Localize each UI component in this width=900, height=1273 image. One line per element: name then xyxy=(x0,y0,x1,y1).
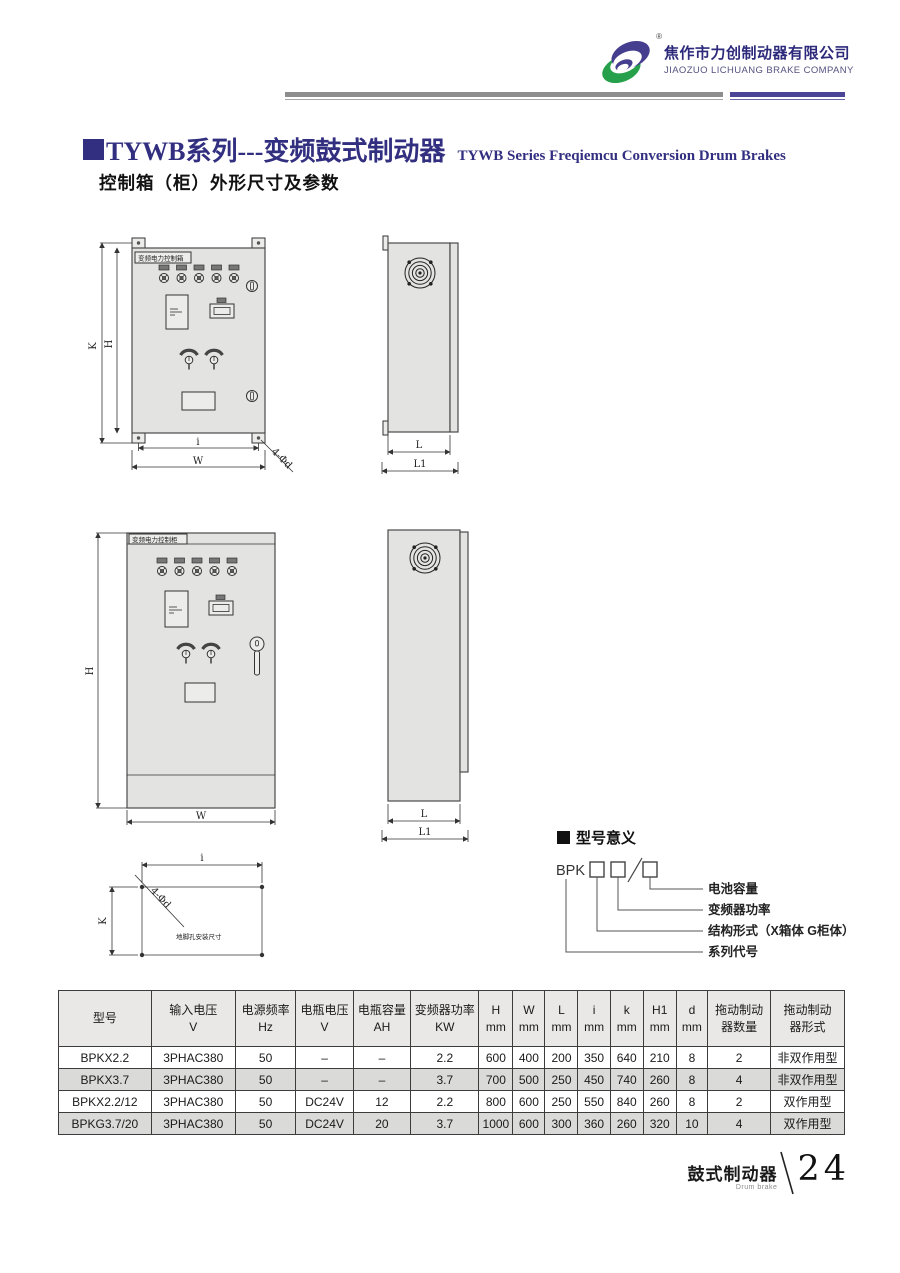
model-meaning-label: 变频器功率 xyxy=(708,902,771,917)
side-body xyxy=(388,530,460,801)
model-prefix: BPK xyxy=(556,863,585,879)
table-cell: 4 xyxy=(708,1113,771,1135)
company-name-en: JIAOZUO LICHUANG BRAKE COMPANY xyxy=(664,65,854,76)
table-cell: 250 xyxy=(545,1091,578,1113)
table-cell: 1000 xyxy=(479,1113,513,1135)
svg-text:i: i xyxy=(196,437,199,448)
svg-text:i: i xyxy=(200,853,203,864)
footer-label-en: Drum brake xyxy=(687,1184,777,1191)
leader-lines xyxy=(566,877,703,952)
table-cell: 260 xyxy=(643,1069,676,1091)
model-meaning-diagram: 型号意义 BPK 电池容量 变频器功率 结构形式（X箱体 G柜体） 系列代号 xyxy=(543,822,893,964)
cabinet-front-drawing: 变频电力控制柜 xyxy=(85,523,310,835)
table-cell: 双作用型 xyxy=(771,1091,845,1113)
table-cell: – xyxy=(296,1047,353,1069)
table-cell: 550 xyxy=(578,1091,610,1113)
table-cell: BPKX3.7 xyxy=(59,1069,152,1091)
column-header: 拖动制动器形式 xyxy=(771,991,845,1047)
table-cell: BPKX2.2 xyxy=(59,1047,152,1069)
column-header: 电源频率Hz xyxy=(235,991,296,1047)
table-cell: 3.7 xyxy=(411,1113,479,1135)
table-cell: 3PHAC380 xyxy=(151,1069,235,1091)
table-cell: 350 xyxy=(578,1047,610,1069)
box-side-drawing: L L1 xyxy=(367,224,472,486)
divider-bar-purple xyxy=(730,92,845,97)
divider-bar-gray xyxy=(285,92,723,97)
table-row: BPKG3.7/203PHAC38050DC24V203.71000600300… xyxy=(59,1113,845,1135)
footer-label-cn: 鼓式制动器 xyxy=(687,1160,777,1185)
column-header: imm xyxy=(578,991,610,1047)
table-cell: 3PHAC380 xyxy=(151,1047,235,1069)
table-row: BPKX2.23PHAC38050––2.2600400200350640210… xyxy=(59,1047,845,1069)
dimension-H: H xyxy=(104,248,117,433)
table-cell: DC24V xyxy=(296,1091,353,1113)
column-header: 变频器功率KW xyxy=(411,991,479,1047)
dimension-W: W xyxy=(132,450,265,470)
svg-text:L: L xyxy=(416,440,423,451)
foot-plan-caption: 地脚孔安装尺寸 xyxy=(176,932,222,941)
display-panel xyxy=(166,295,188,329)
table-cell: 50 xyxy=(235,1091,296,1113)
cabinet-side-drawing: L L1 xyxy=(370,523,472,848)
model-meaning-heading: 型号意义 xyxy=(576,829,636,847)
divider-line-gray xyxy=(285,99,723,100)
column-header: 拖动制动器数量 xyxy=(708,991,771,1047)
table-cell: 非双作用型 xyxy=(771,1069,845,1091)
footer-label: 鼓式制动器 Drum brake xyxy=(687,1160,777,1191)
table-cell: 200 xyxy=(545,1047,578,1069)
foot-plan-drawing: i K 4-Φd 地脚孔安装尺寸 xyxy=(88,843,303,965)
table-cell: 260 xyxy=(643,1091,676,1113)
spec-table: 型号输入电压V电源频率Hz电瓶电压V电瓶容量AH变频器功率KWHmmWmmLmm… xyxy=(58,990,845,1135)
table-cell: 4 xyxy=(708,1069,771,1091)
table-cell: 3PHAC380 xyxy=(151,1113,235,1135)
box-name-plate: 变频电力控制箱 xyxy=(138,254,184,263)
column-header: Lmm xyxy=(545,991,578,1047)
table-cell: 700 xyxy=(479,1069,513,1091)
brand-text: 焦作市力创制动器有限公司 JIAOZUO LICHUANG BRAKE COMP… xyxy=(664,34,854,76)
table-cell: 250 xyxy=(545,1069,578,1091)
svg-text:H: H xyxy=(104,339,115,348)
dimension-L: L xyxy=(388,804,460,824)
table-cell: 400 xyxy=(513,1047,545,1069)
column-header: 输入电压V xyxy=(151,991,235,1047)
table-cell: 800 xyxy=(479,1091,513,1113)
heading-square-icon xyxy=(557,831,570,844)
side-body xyxy=(388,243,450,432)
series-title-en: TYWB Series Freqiemcu Conversion Drum Br… xyxy=(457,148,785,165)
table-cell: 600 xyxy=(513,1091,545,1113)
table-cell: 50 xyxy=(235,1047,296,1069)
page-subtitle: 控制箱（柜）外形尺寸及参数 xyxy=(99,170,340,195)
svg-text:L1: L1 xyxy=(413,459,426,470)
logo-swirl-icon xyxy=(594,34,658,88)
svg-text:L1: L1 xyxy=(418,827,431,838)
column-header: kmm xyxy=(610,991,643,1047)
table-cell: 50 xyxy=(235,1069,296,1091)
holes-callout: 4-Φd xyxy=(261,440,294,472)
column-header: H1mm xyxy=(643,991,676,1047)
table-cell: DC24V xyxy=(296,1113,353,1135)
table-cell: 10 xyxy=(676,1113,707,1135)
dimension-i: i xyxy=(139,437,259,451)
dimension-L1: L1 xyxy=(382,827,468,842)
column-header: 电瓶容量AH xyxy=(353,991,410,1047)
svg-text:W: W xyxy=(196,811,207,822)
svg-text:4-Φd: 4-Φd xyxy=(148,886,173,912)
table-cell: 2.2 xyxy=(411,1047,479,1069)
column-header: Wmm xyxy=(513,991,545,1047)
column-header: Hmm xyxy=(479,991,513,1047)
table-row: BPKX2.2/123PHAC38050DC24V122.28006002505… xyxy=(59,1091,845,1113)
table-header-row: 型号输入电压V电源频率Hz电瓶电压V电瓶容量AH变频器功率KWHmmWmmLmm… xyxy=(59,991,845,1047)
cabinet-body xyxy=(127,533,275,808)
series-title-cn: TYWB系列---变频鼓式制动器 xyxy=(106,131,445,168)
model-meaning-label: 结构形式（X箱体 G柜体） xyxy=(708,923,855,938)
svg-text:L: L xyxy=(421,809,428,820)
page-number: 24 xyxy=(797,1152,850,1187)
dimension-H: H xyxy=(85,533,127,808)
table-cell: – xyxy=(296,1069,353,1091)
slash-divider xyxy=(628,858,642,882)
door-latch-icon xyxy=(247,391,258,402)
table-cell: – xyxy=(353,1069,410,1091)
divider-line-purple xyxy=(730,99,845,100)
column-header: 电瓶电压V xyxy=(296,991,353,1047)
page-footer: 鼓式制动器 Drum brake 24 xyxy=(660,1150,850,1196)
table-cell: 300 xyxy=(545,1113,578,1135)
table-row: BPKX3.73PHAC38050––3.7700500250450740260… xyxy=(59,1069,845,1091)
table-cell: 3.7 xyxy=(411,1069,479,1091)
column-header: dmm xyxy=(676,991,707,1047)
column-header: 型号 xyxy=(59,991,152,1047)
registered-mark: ® xyxy=(656,32,662,41)
bottom-vent xyxy=(182,392,215,410)
table-cell: 非双作用型 xyxy=(771,1047,845,1069)
display-panel xyxy=(165,591,188,627)
table-cell: BPKX2.2/12 xyxy=(59,1091,152,1113)
bottom-vent xyxy=(185,683,215,702)
svg-text:4-Φd: 4-Φd xyxy=(269,446,294,471)
table-cell: 2.2 xyxy=(411,1091,479,1113)
svg-text:K: K xyxy=(88,342,99,350)
svg-text:H: H xyxy=(85,666,96,675)
table-cell: 500 xyxy=(513,1069,545,1091)
table-cell: 210 xyxy=(643,1047,676,1069)
cabinet-name-plate: 变频电力控制柜 xyxy=(132,535,178,544)
section-title: TYWB系列---变频鼓式制动器 TYWB Series Freqiemcu C… xyxy=(83,131,786,168)
table-cell: 450 xyxy=(578,1069,610,1091)
company-name-cn: 焦作市力创制动器有限公司 xyxy=(664,42,854,63)
model-meaning-label: 电池容量 xyxy=(708,881,759,896)
table-cell: 20 xyxy=(353,1113,410,1135)
table-cell: 2 xyxy=(708,1047,771,1069)
company-brand: ® 焦作市力创制动器有限公司 JIAOZUO LICHUANG BRAKE CO… xyxy=(594,34,854,88)
table-cell: 260 xyxy=(610,1113,643,1135)
dimension-K: K xyxy=(98,887,138,955)
table-cell: – xyxy=(353,1047,410,1069)
door-latch-icon xyxy=(247,281,258,292)
table-cell: 360 xyxy=(578,1113,610,1135)
table-cell: 12 xyxy=(353,1091,410,1113)
table-cell: BPKG3.7/20 xyxy=(59,1113,152,1135)
table-cell: 2 xyxy=(708,1091,771,1113)
dimension-W: W xyxy=(127,810,275,825)
box-front-drawing: 变频电力控制箱 xyxy=(85,224,310,482)
table-cell: 740 xyxy=(610,1069,643,1091)
model-meaning-label: 系列代号 xyxy=(708,944,758,959)
table-cell: 600 xyxy=(479,1047,513,1069)
table-cell: 8 xyxy=(676,1091,707,1113)
table-cell: 8 xyxy=(676,1047,707,1069)
svg-text:K: K xyxy=(98,917,109,925)
table-cell: 320 xyxy=(643,1113,676,1135)
dimension-i: i xyxy=(142,853,262,883)
model-code-boxes xyxy=(590,862,657,877)
table-cell: 640 xyxy=(610,1047,643,1069)
table-cell: 3PHAC380 xyxy=(151,1091,235,1113)
table-cell: 8 xyxy=(676,1069,707,1091)
dimension-L: L xyxy=(388,435,450,455)
table-cell: 双作用型 xyxy=(771,1113,845,1135)
dimension-L1: L1 xyxy=(382,459,458,474)
table-cell: 840 xyxy=(610,1091,643,1113)
footer-slash-icon xyxy=(778,1150,796,1196)
svg-text:W: W xyxy=(193,456,204,467)
document-page: ® 焦作市力创制动器有限公司 JIAOZUO LICHUANG BRAKE CO… xyxy=(0,0,900,1273)
table-cell: 600 xyxy=(513,1113,545,1135)
table-cell: 50 xyxy=(235,1113,296,1135)
title-square-bullet-icon xyxy=(83,139,104,160)
company-logo-icon: ® xyxy=(594,34,658,88)
